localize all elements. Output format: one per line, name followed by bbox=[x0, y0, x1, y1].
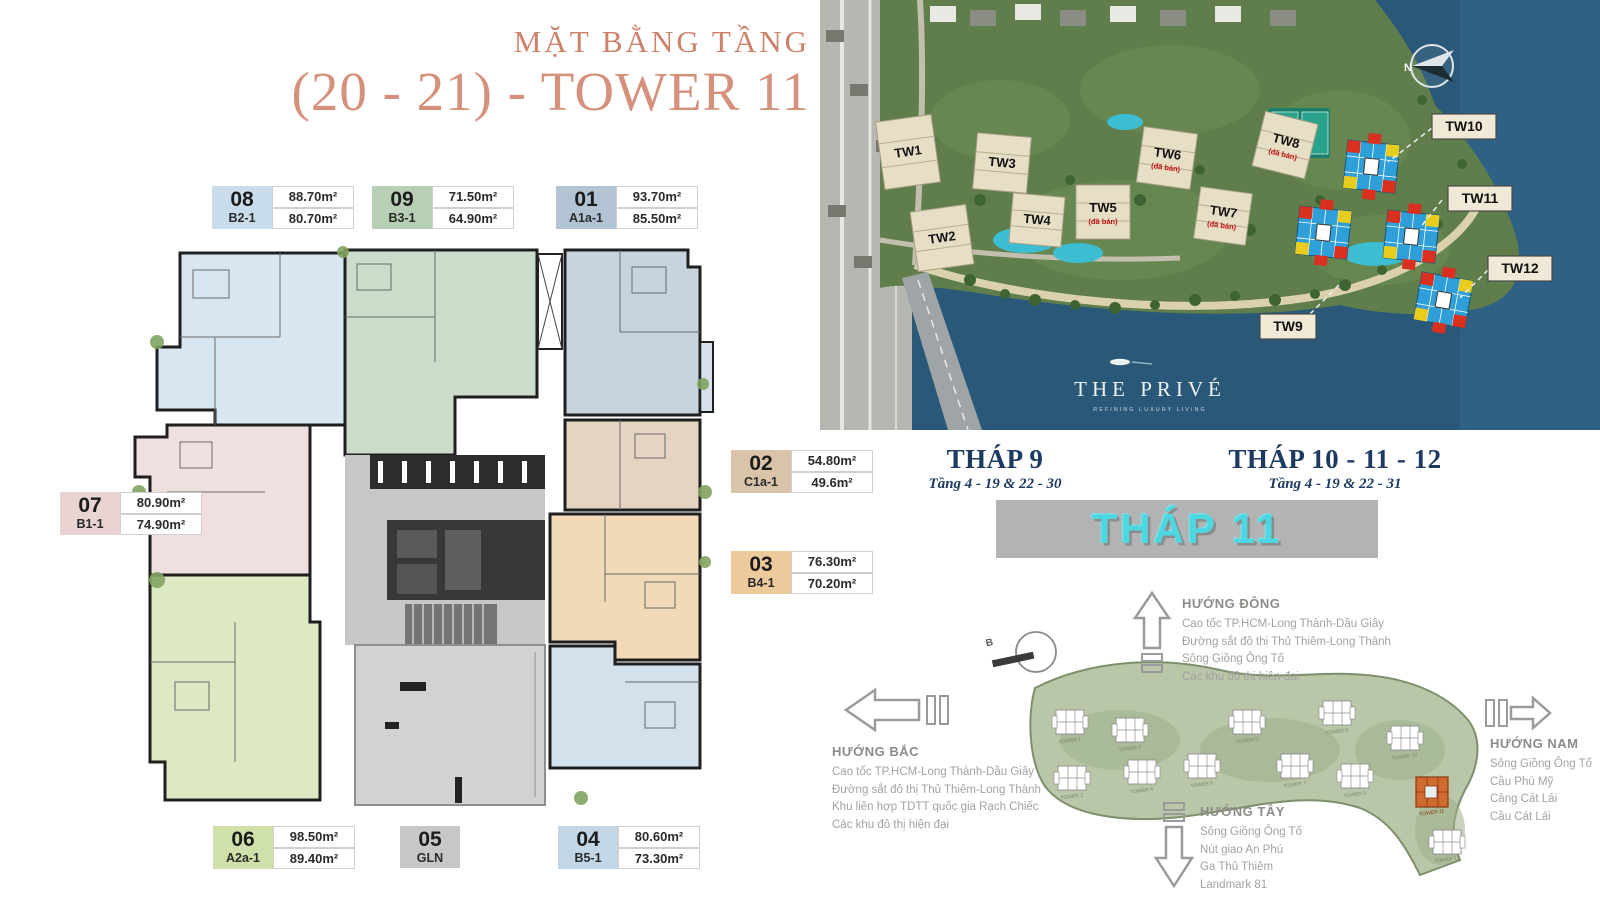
unit-label-02: 02 C1a-1 54.80m² 49.6m² bbox=[731, 450, 873, 493]
unit-03-area-top: 76.30m² bbox=[791, 551, 873, 573]
unit-01-area-bottom: 85.50m² bbox=[616, 208, 698, 230]
unit-08-area-bottom: 80.70m² bbox=[272, 208, 354, 230]
unit-03-area bbox=[550, 514, 700, 660]
direction-north: HƯỚNG BẮC Cao tốc TP.HCM-Long Thành-Dầu … bbox=[832, 744, 1072, 834]
gln-mark bbox=[400, 682, 426, 691]
unit-02-area-bottom: 49.6m² bbox=[791, 472, 873, 494]
unit-04-area bbox=[550, 646, 700, 768]
shaft-void bbox=[538, 254, 562, 349]
unit-02-area-top: 54.80m² bbox=[791, 450, 873, 472]
tower-tw5: TW5 (đã bán) bbox=[1076, 185, 1130, 239]
svg-text:TW10: TW10 bbox=[1445, 118, 1483, 134]
thap-11-banner-text: THÁP 11 bbox=[1092, 505, 1283, 553]
svg-text:TW12: TW12 bbox=[1501, 260, 1539, 276]
chip-tw11: TW11 bbox=[1448, 186, 1512, 211]
unit-04-area-top: 80.60m² bbox=[618, 826, 700, 848]
unit-06-area-top: 98.50m² bbox=[273, 826, 355, 848]
aerial-site-map: TW1 TW2 TW3 TW4 TW5 (đã bán) TW6 (đã b bbox=[820, 0, 1600, 430]
unit-01-area-top: 93.70m² bbox=[616, 186, 698, 208]
chip-tw9: TW9 bbox=[1260, 314, 1316, 339]
unit-label-05: 05 GLN bbox=[400, 826, 460, 868]
direction-south: HƯỚNG NAM Sông Giồng Ông Tố Cầu Phú Mỹ C… bbox=[1490, 736, 1600, 826]
arrow-right-icon bbox=[1483, 694, 1553, 732]
unit-06-area-bottom: 89.40m² bbox=[273, 848, 355, 870]
unit-09-area bbox=[345, 250, 537, 455]
unit-07-badge: 07 B1-1 bbox=[60, 492, 120, 535]
svg-text:TW11: TW11 bbox=[1462, 190, 1499, 206]
tower-tw7: TW7 (đã bán) bbox=[1194, 187, 1253, 246]
thap-10-11-12-subtitle: Tầng 4 - 19 & 22 - 31 bbox=[1195, 476, 1475, 493]
brochure-page: MẶT BẰNG TẦNG (20 - 21) - TOWER 11 bbox=[0, 0, 1600, 902]
arrow-down-icon bbox=[1152, 800, 1196, 894]
unit-label-08: 08 B2-1 88.70m² 80.70m² bbox=[212, 186, 354, 229]
unit-03-badge: 03 B4-1 bbox=[731, 551, 791, 594]
unit-label-07: 07 B1-1 80.90m² 74.90m² bbox=[60, 492, 202, 535]
unit-09-area-bottom: 64.90m² bbox=[432, 208, 514, 230]
unit-02-badge: 02 C1a-1 bbox=[731, 450, 791, 493]
svg-text:THE PRIVÉ: THE PRIVÉ bbox=[1074, 377, 1226, 401]
svg-text:B: B bbox=[985, 637, 994, 649]
direction-east-title: HƯỚNG ĐÔNG bbox=[1182, 596, 1422, 611]
tower-tw2: TW2 bbox=[910, 204, 974, 271]
floor-plan-title-line2: (20 - 21) - TOWER 11 bbox=[290, 63, 810, 121]
unit-07-area-top: 80.90m² bbox=[120, 492, 202, 514]
thap-10-11-12-title: THÁP 10 - 11 - 12 bbox=[1195, 444, 1475, 475]
unit-07-area-bottom: 74.90m² bbox=[120, 514, 202, 536]
thap-9-subtitle: Tầng 4 - 19 & 22 - 30 bbox=[880, 476, 1110, 493]
tower-tw4: TW4 bbox=[1009, 193, 1065, 247]
unit-label-04: 04 B5-1 80.60m² 73.30m² bbox=[558, 826, 700, 869]
tower-11-highlight bbox=[1416, 777, 1448, 807]
svg-text:N: N bbox=[1404, 62, 1412, 74]
svg-text:TW9: TW9 bbox=[1273, 318, 1303, 334]
direction-north-title: HƯỚNG BẮC bbox=[832, 744, 1072, 759]
unit-label-06: 06 A2a-1 98.50m² 89.40m² bbox=[213, 826, 355, 869]
elevator-bank bbox=[370, 455, 545, 489]
project-logo: THE PRIVÉ REFINING LUXURY LIVING bbox=[1074, 377, 1226, 413]
arrow-left-icon bbox=[843, 686, 955, 734]
thap-11-banner: THÁP 11 bbox=[996, 500, 1378, 558]
tower-tw1: TW1 bbox=[876, 114, 941, 189]
unit-label-01: 01 A1a-1 93.70m² 85.50m² bbox=[556, 186, 698, 229]
chip-tw10: TW10 bbox=[1432, 114, 1496, 139]
svg-text:TW3: TW3 bbox=[988, 154, 1017, 171]
unit-08-badge: 08 B2-1 bbox=[212, 186, 272, 229]
unit-label-09: 09 B3-1 71.50m² 64.90m² bbox=[372, 186, 514, 229]
chip-tw12: TW12 bbox=[1488, 256, 1552, 281]
unit-01-badge: 01 A1a-1 bbox=[556, 186, 616, 229]
sold-note: (đã bán) bbox=[1088, 217, 1118, 226]
svg-text:REFINING LUXURY LIVING: REFINING LUXURY LIVING bbox=[1093, 407, 1206, 413]
unit-08-area bbox=[157, 253, 345, 425]
unit-08-area-top: 88.70m² bbox=[272, 186, 354, 208]
unit-04-area-bottom: 73.30m² bbox=[618, 848, 700, 870]
unit-06-badge: 06 A2a-1 bbox=[213, 826, 273, 869]
tower-tw3: TW3 bbox=[973, 133, 1032, 193]
header-thap-10-11-12: THÁP 10 - 11 - 12 Tầng 4 - 19 & 22 - 31 bbox=[1195, 444, 1475, 493]
direction-west: HƯỚNG TÂY Sông Giồng Ông Tố Nút giao An … bbox=[1200, 804, 1400, 894]
arrow-up-icon bbox=[1132, 590, 1172, 678]
unit-09-area-top: 71.50m² bbox=[432, 186, 514, 208]
direction-west-title: HƯỚNG TÂY bbox=[1200, 804, 1400, 819]
thap-9-title: THÁP 9 bbox=[880, 444, 1110, 475]
unit-01-balcony bbox=[700, 342, 713, 412]
floor-plan-title-line1: MẶT BẰNG TẦNG bbox=[290, 26, 810, 59]
direction-east: HƯỚNG ĐÔNG Cao tốc TP.HCM-Long Thành-Dầu… bbox=[1182, 596, 1422, 686]
unit-09-badge: 09 B3-1 bbox=[372, 186, 432, 229]
svg-text:TW5: TW5 bbox=[1089, 200, 1116, 215]
compass-b-icon: B bbox=[985, 632, 1056, 672]
header-thap-9: THÁP 9 Tầng 4 - 19 & 22 - 30 bbox=[880, 444, 1110, 493]
svg-text:TW4: TW4 bbox=[1023, 211, 1052, 228]
unit-04-badge: 04 B5-1 bbox=[558, 826, 618, 869]
unit-05-badge: 05 GLN bbox=[400, 826, 460, 868]
unit-02-area bbox=[565, 420, 700, 510]
direction-south-title: HƯỚNG NAM bbox=[1490, 736, 1600, 751]
unit-05-core bbox=[345, 455, 545, 805]
floor-plan-title: MẶT BẰNG TẦNG (20 - 21) - TOWER 11 bbox=[290, 26, 810, 120]
tower-tw6: TW6 (đã bán) bbox=[1136, 127, 1197, 190]
